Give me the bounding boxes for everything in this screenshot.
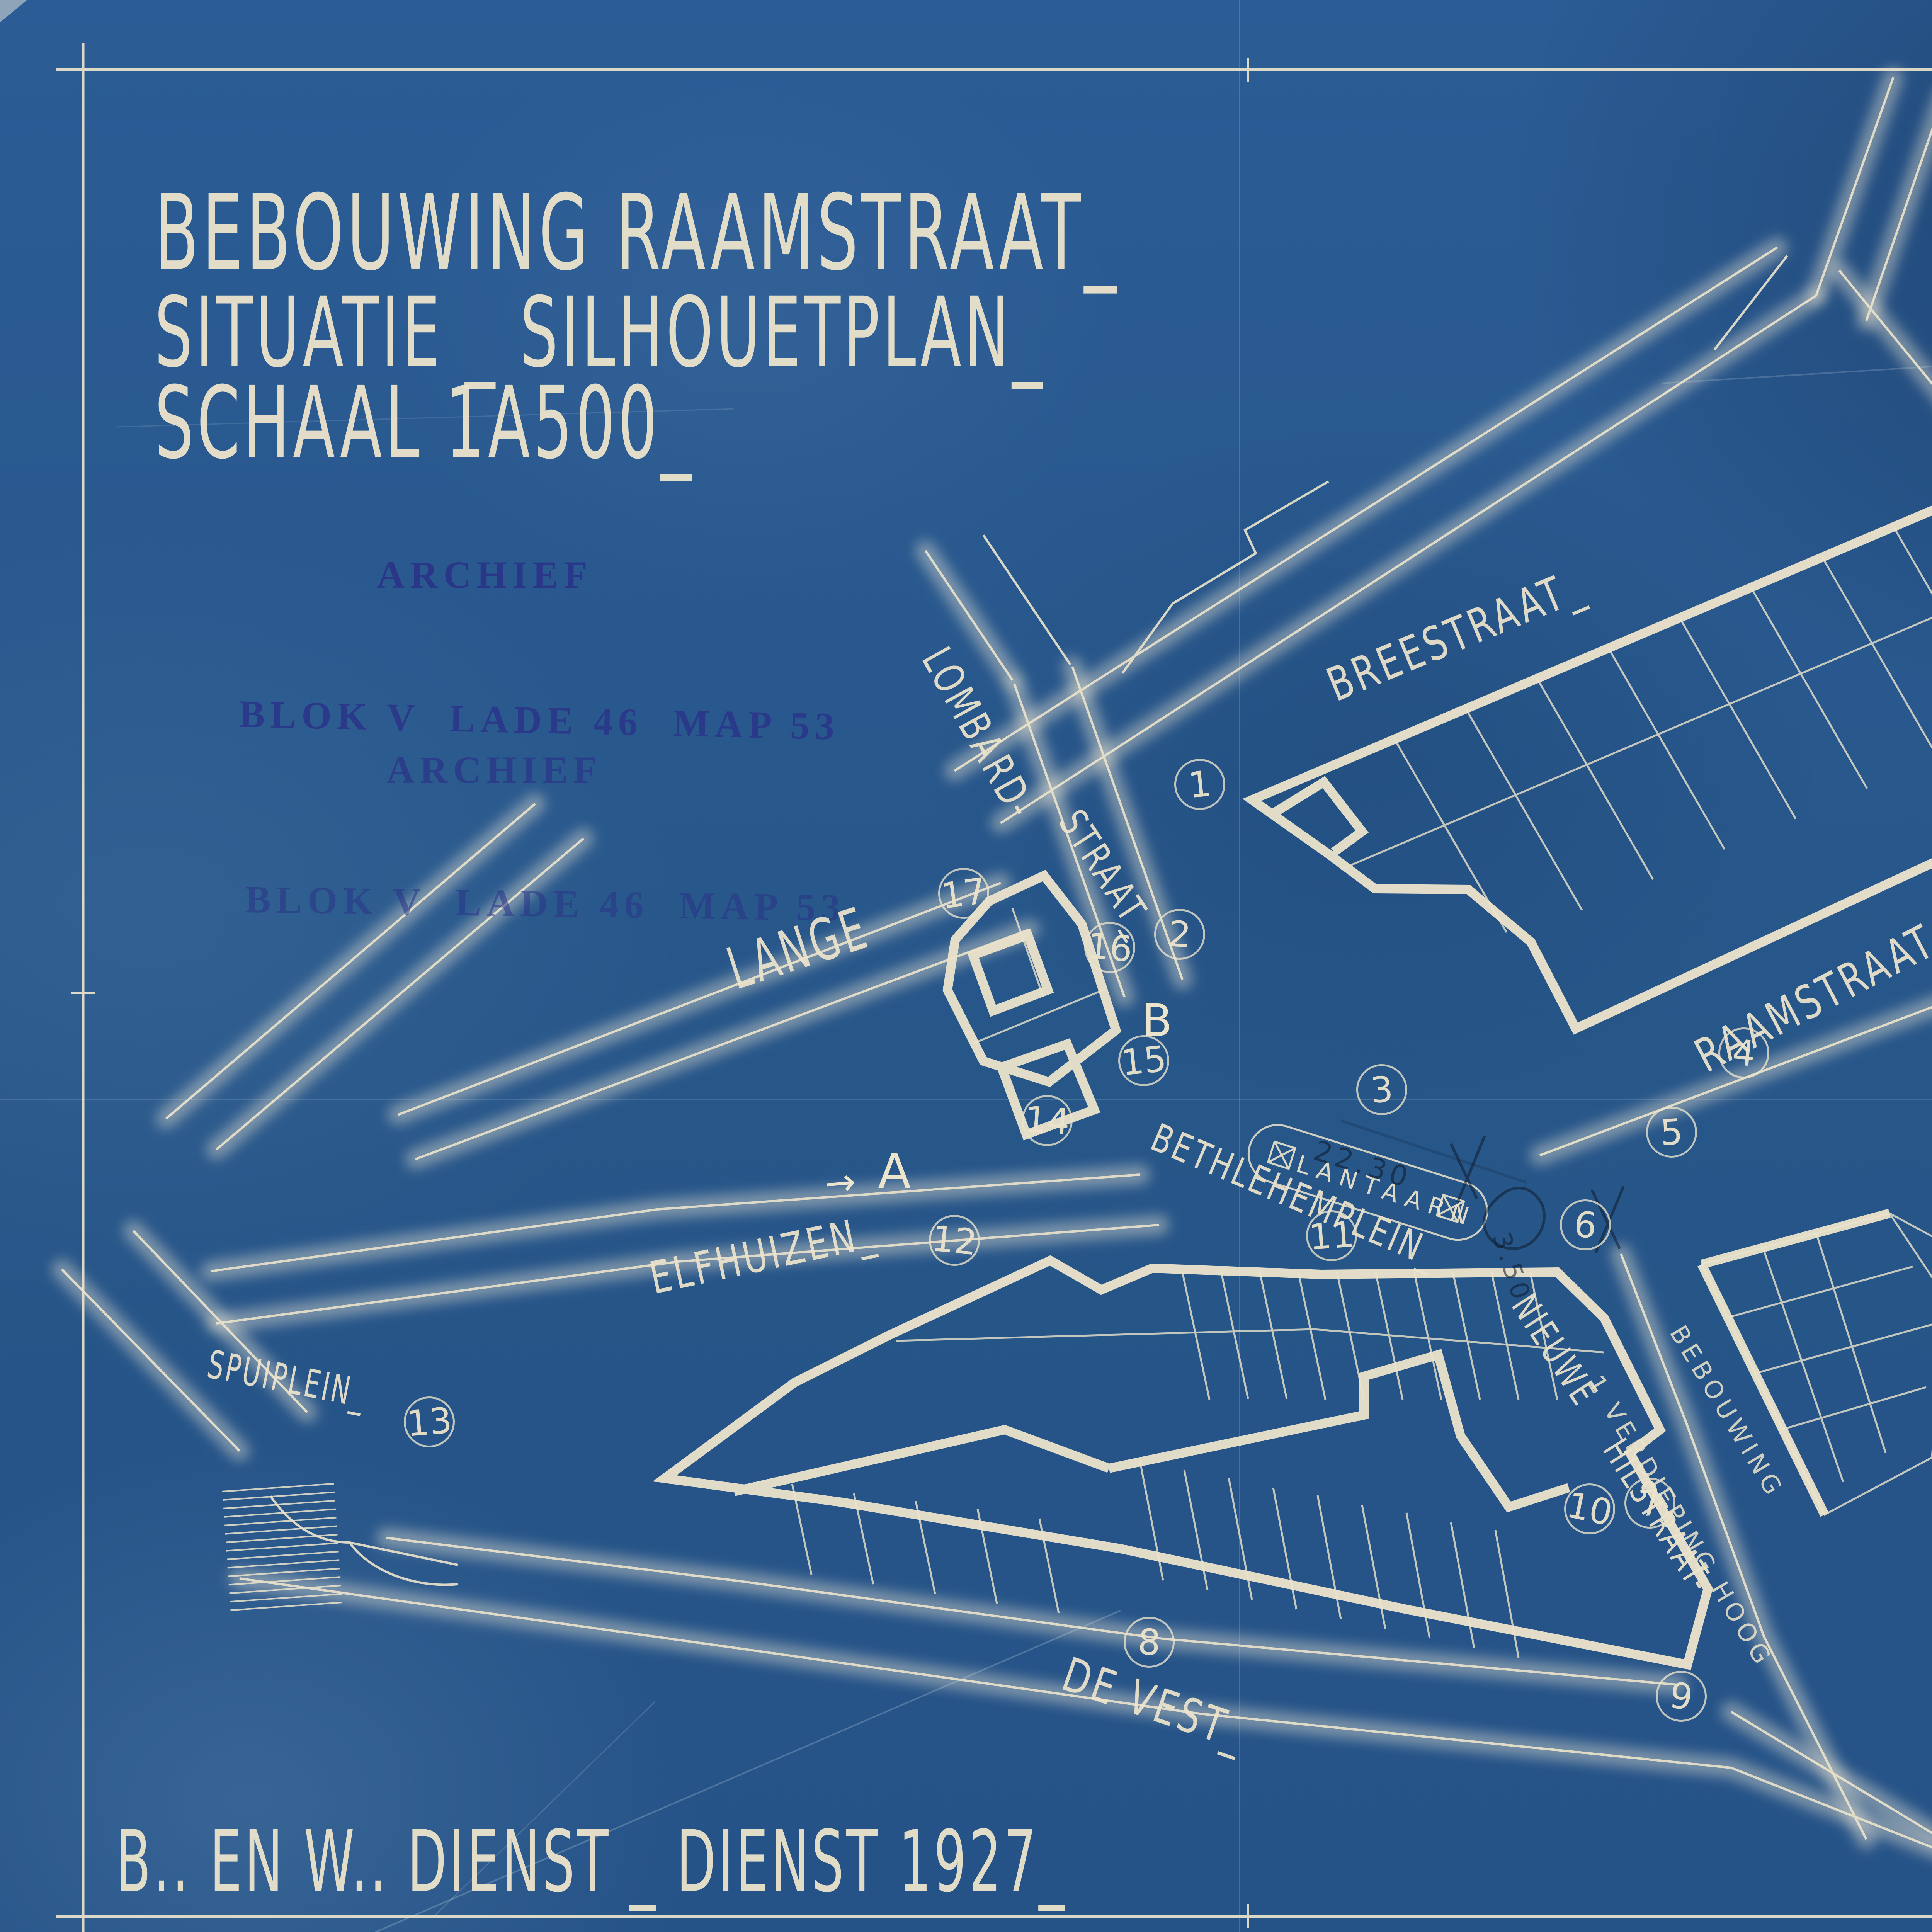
archive-stamp-2-line-2: BLOK V LADE 46 MAP 53	[245, 877, 846, 930]
blueprint-sheet: BEBOUWING RAAMSTRAAT_ SITUATIE _ SILHOUE…	[0, 0, 1932, 1932]
archive-stamp-2-line-1: ARCHIEF	[386, 748, 602, 792]
plot-number-11: 11	[1304, 1209, 1359, 1263]
plot-number-14: 14	[1020, 1094, 1075, 1148]
title-line-3: SCHAAL 1A500_	[155, 365, 694, 481]
archive-stamp-1-line-1: ARCHIEF	[377, 553, 593, 597]
footer-caption: B.. EN W.. DIENST _ DIENST 1927_	[116, 1812, 1067, 1911]
section-marker-a-arrow: →	[823, 1160, 857, 1206]
section-marker-a: A	[878, 1144, 911, 1200]
title-line-1: BEBOUWING RAAMSTRAAT_	[155, 172, 1120, 294]
